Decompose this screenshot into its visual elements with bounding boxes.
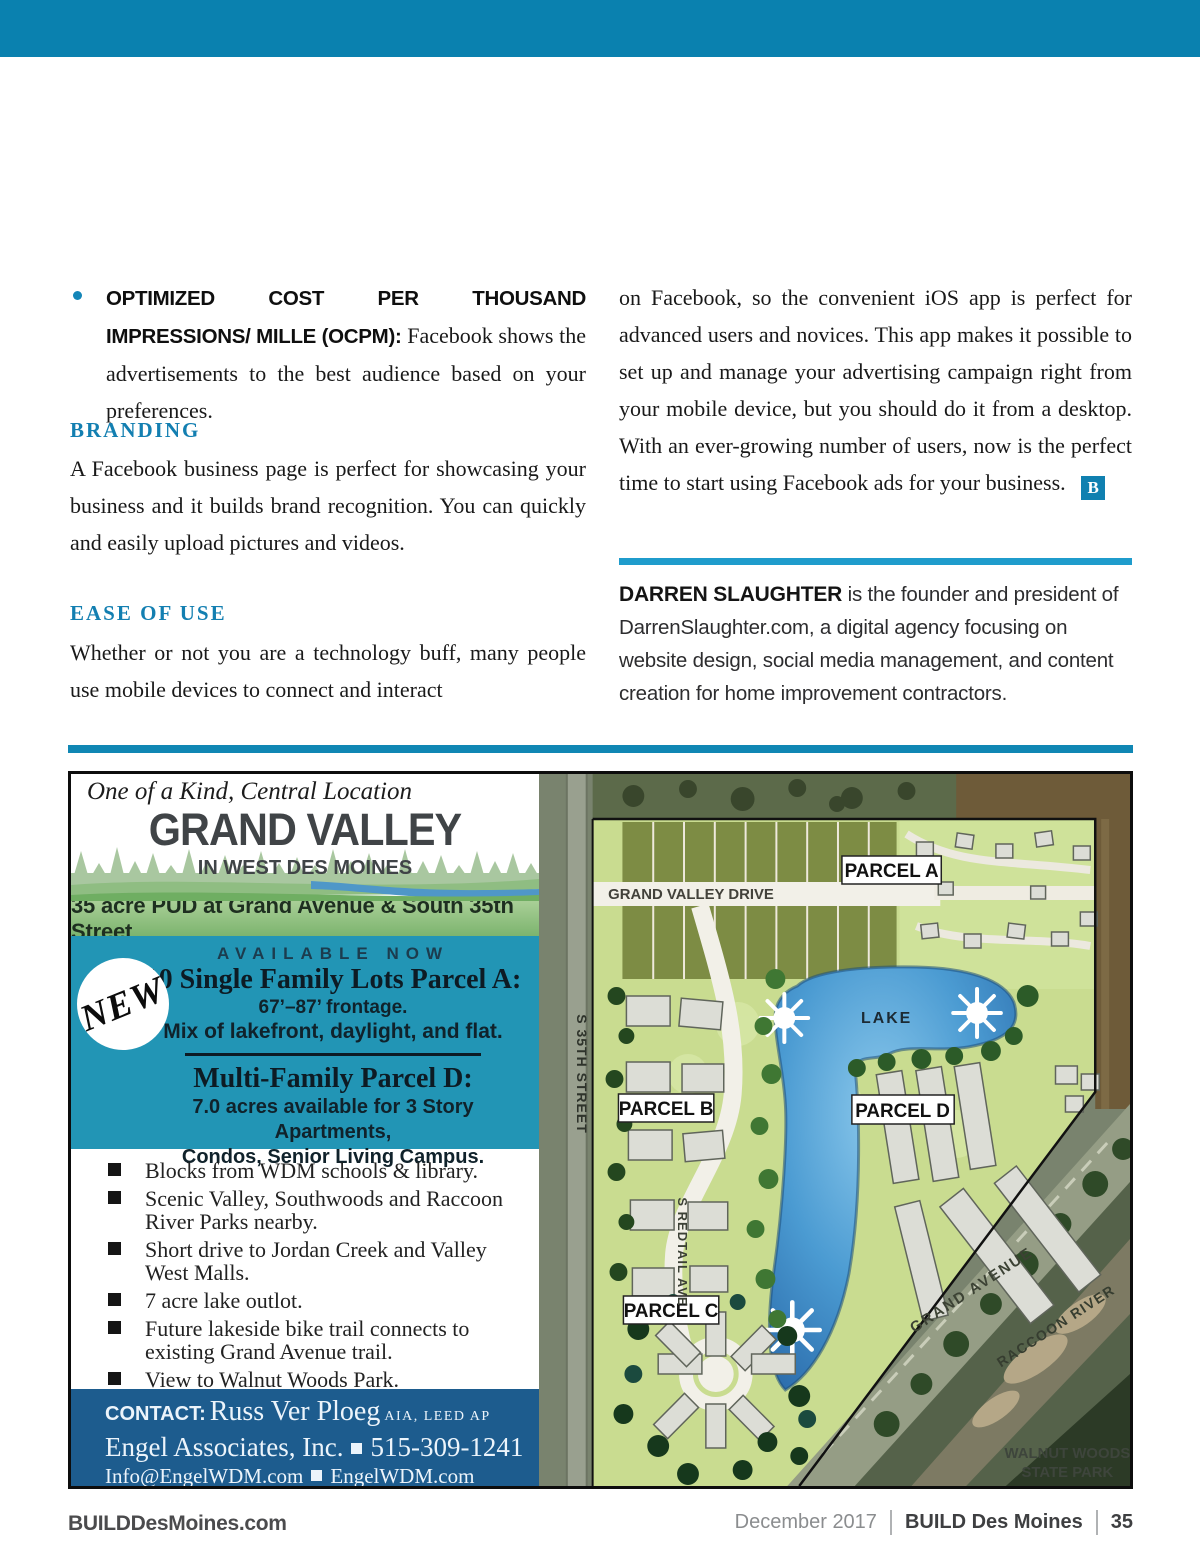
bullet-dot-icon bbox=[73, 291, 82, 300]
site-plan-map: GRAND VALLEY DRIVE PARCEL A LAKE PARCEL … bbox=[539, 774, 1130, 1486]
contact-line-1: CONTACT: Russ Ver Ploeg AIA, LEED AP bbox=[105, 1397, 539, 1432]
article-bullet-item: OPTIMIZED COST PER THOUSAND IMPRESSIONS/… bbox=[70, 279, 586, 429]
bio-divider-rule bbox=[619, 558, 1132, 565]
branding-heading: BRANDING bbox=[70, 418, 200, 443]
contact-company: Engel Associates, Inc. bbox=[105, 1432, 343, 1462]
article-right-column: on Facebook, so the convenient iOS app i… bbox=[619, 279, 1132, 501]
site-plan-graphic: GRAND VALLEY DRIVE PARCEL A LAKE PARCEL … bbox=[539, 774, 1130, 1486]
ad-left-panel: One of a Kind, Central Location GRAND VA… bbox=[71, 774, 539, 1486]
bullet-item-text: OPTIMIZED COST PER THOUSAND IMPRESSIONS/… bbox=[106, 279, 586, 429]
square-bullet-icon bbox=[108, 1372, 121, 1385]
footer-separator bbox=[890, 1510, 892, 1535]
svg-text:PARCEL C: PARCEL C bbox=[624, 1301, 719, 1322]
new-badge: NEW bbox=[77, 958, 169, 1050]
square-bullet-icon bbox=[108, 1191, 121, 1204]
ad-contact-box: CONTACT: Russ Ver Ploeg AIA, LEED AP Eng… bbox=[71, 1389, 539, 1486]
svg-text:PARCEL D: PARCEL D bbox=[855, 1101, 950, 1122]
footer-separator bbox=[1096, 1510, 1098, 1535]
square-bullet-icon bbox=[108, 1321, 121, 1334]
parcel-a-mix: Mix of lakefront, daylight, and flat. bbox=[133, 1020, 533, 1044]
parcel-a-frontage: 67’–87’ frontage. bbox=[133, 997, 533, 1019]
ease-of-use-heading: EASE OF USE bbox=[70, 601, 227, 626]
svg-text:WALNUT WOODS: WALNUT WOODS bbox=[1005, 1445, 1130, 1462]
new-badge-text: NEW bbox=[74, 968, 171, 1041]
parcel-a-title: 10 Single Family Lots Parcel A: bbox=[133, 964, 533, 996]
map-label-grand-valley-drive: GRAND VALLEY DRIVE bbox=[608, 886, 774, 903]
map-label-parcel-d: PARCEL D bbox=[852, 1095, 954, 1124]
square-bullet-icon bbox=[108, 1242, 121, 1255]
svg-text:PARCEL B: PARCEL B bbox=[619, 1099, 714, 1120]
feature-item: Blocks from WDM schools & library. bbox=[145, 1159, 517, 1182]
square-bullet-icon bbox=[108, 1163, 121, 1176]
contact-phone: 515-309-1241 bbox=[370, 1432, 523, 1462]
footer-magazine-name: BUILD Des Moines bbox=[905, 1511, 1083, 1534]
feature-item: Short drive to Jordan Creek and Valley W… bbox=[145, 1238, 517, 1284]
feature-item: Scenic Valley, Southwoods and Raccoon Ri… bbox=[145, 1187, 517, 1233]
contact-website: EngelWDM.com bbox=[330, 1464, 474, 1486]
map-label-lake: LAKE bbox=[861, 1010, 912, 1027]
available-now-label: AVAILABLE NOW bbox=[133, 936, 533, 964]
map-label-walnut-woods: WALNUT WOODS STATE PARK bbox=[1005, 1445, 1130, 1481]
end-of-article-mark: B bbox=[1081, 476, 1105, 500]
magazine-page: OPTIMIZED COST PER THOUSAND IMPRESSIONS/… bbox=[0, 0, 1200, 1553]
branding-paragraph: A Facebook business page is perfect for … bbox=[70, 450, 586, 561]
square-separator-icon bbox=[351, 1443, 362, 1454]
author-bio: DARREN SLAUGHTER is the founder and pres… bbox=[619, 578, 1138, 710]
square-separator-icon bbox=[311, 1470, 322, 1481]
contact-name: Russ Ver Ploeg bbox=[210, 1396, 381, 1427]
feature-item: 7 acre lake outlot. bbox=[145, 1289, 517, 1312]
ad-title: GRAND VALLEY bbox=[90, 804, 521, 856]
map-label-s-35th-street: S 35TH STREET bbox=[574, 1014, 590, 1133]
map-label-parcel-a: PARCEL A bbox=[842, 856, 941, 884]
ad-location-band: 35 acre PUD at Grand Avenue & South 35th… bbox=[71, 901, 539, 936]
ease-of-use-paragraph: Whether or not you are a technology buff… bbox=[70, 634, 586, 708]
footer-issue-date: December 2017 bbox=[735, 1511, 877, 1534]
ad-offer-box: NEW AVAILABLE NOW 10 Single Family Lots … bbox=[71, 936, 539, 1149]
contact-line-2: Engel Associates, Inc.515-309-1241 bbox=[105, 1432, 539, 1463]
ad-subtitle: IN WEST DES MOINES bbox=[71, 857, 539, 880]
grand-valley-ad: One of a Kind, Central Location GRAND VA… bbox=[68, 771, 1133, 1489]
ad-feature-list: Blocks from WDM schools & library. Sceni… bbox=[71, 1149, 539, 1389]
map-label-parcel-c: PARCEL C bbox=[623, 1296, 718, 1324]
contact-label: CONTACT: bbox=[105, 1403, 206, 1425]
right-column-paragraph: on Facebook, so the convenient iOS app i… bbox=[619, 285, 1132, 495]
offer-divider bbox=[185, 1053, 481, 1056]
footer-site-url: BUILDDesMoines.com bbox=[68, 1512, 287, 1536]
parcel-d-title: Multi-Family Parcel D: bbox=[133, 1063, 533, 1095]
top-color-bar bbox=[0, 0, 1200, 57]
ad-header: One of a Kind, Central Location GRAND VA… bbox=[71, 774, 539, 901]
parcel-d-line1: 7.0 acres available for 3 Story Apartmen… bbox=[133, 1095, 533, 1145]
author-name: DARREN SLAUGHTER bbox=[619, 583, 842, 606]
contact-credentials: AIA, LEED AP bbox=[384, 1409, 490, 1424]
contact-line-3: Info@EngelWDM.comEngelWDM.com bbox=[105, 1463, 539, 1486]
map-label-s-redtail-ave: S REDTAIL AVE bbox=[675, 1197, 690, 1306]
footer-right-group: December 2017 BUILD Des Moines 35 bbox=[735, 1510, 1133, 1535]
footer-page-number: 35 bbox=[1111, 1511, 1133, 1534]
contact-email: Info@EngelWDM.com bbox=[105, 1464, 303, 1486]
feature-item: View to Walnut Woods Park. bbox=[145, 1368, 517, 1391]
map-label-parcel-b: PARCEL B bbox=[618, 1094, 713, 1122]
ad-divider-rule bbox=[68, 745, 1133, 753]
svg-text:PARCEL A: PARCEL A bbox=[845, 861, 939, 882]
ad-tagline: One of a Kind, Central Location bbox=[87, 778, 412, 806]
square-bullet-icon bbox=[108, 1293, 121, 1306]
feature-item: Future lakeside bike trail connects to e… bbox=[145, 1317, 517, 1363]
svg-text:STATE PARK: STATE PARK bbox=[1022, 1464, 1114, 1481]
